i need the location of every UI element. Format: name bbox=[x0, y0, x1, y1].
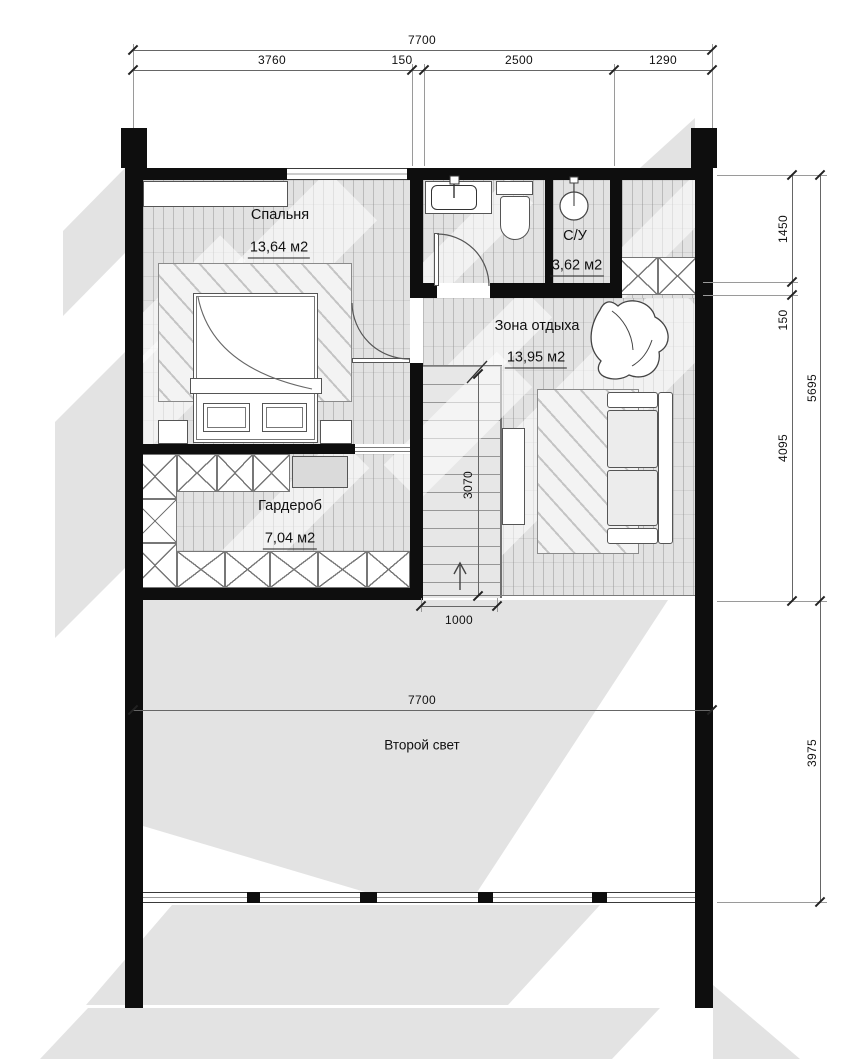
wardrobe-cabinet bbox=[225, 551, 270, 588]
window bbox=[143, 892, 695, 903]
dim-top-total: 7700 bbox=[408, 33, 436, 47]
nightstand bbox=[320, 420, 352, 444]
dim-stairs-depth: 3070 bbox=[461, 471, 475, 499]
interior-wall bbox=[410, 363, 423, 600]
interior-wall bbox=[125, 588, 421, 600]
wardrobe-cabinet bbox=[367, 551, 410, 588]
sofa-armrest bbox=[607, 528, 658, 544]
toilet-tank bbox=[496, 181, 533, 195]
wardrobe-cabinet bbox=[270, 551, 318, 588]
corridor-cabinet bbox=[658, 257, 697, 295]
window-pier bbox=[247, 892, 260, 903]
window bbox=[287, 168, 407, 180]
dim-middle: 7700 bbox=[408, 693, 436, 707]
wardrobe-cabinet bbox=[217, 454, 253, 492]
dim-segment: 1290 bbox=[649, 53, 677, 67]
area-label-bedroom: 13,64 м2 bbox=[248, 240, 310, 259]
area-label-bathroom: 3,62 м2 bbox=[550, 258, 604, 277]
exterior-wall bbox=[143, 168, 287, 180]
bedroom-door-leaf bbox=[352, 358, 410, 363]
exterior-wall bbox=[407, 168, 695, 180]
sofa-cushion bbox=[607, 410, 658, 468]
dim-right: 4095 bbox=[776, 434, 790, 462]
exterior-wall bbox=[695, 168, 713, 1008]
area-label-lounge: 13,95 м2 bbox=[505, 350, 567, 369]
corridor-cabinet bbox=[618, 257, 658, 295]
toilet bbox=[500, 196, 530, 240]
wardrobe-cabinet bbox=[177, 551, 225, 588]
bed-blanket bbox=[190, 378, 322, 394]
dim-segment: 3760 bbox=[258, 53, 286, 67]
column bbox=[121, 128, 147, 168]
window-pier bbox=[478, 892, 493, 903]
dim-stairs-width: 1000 bbox=[445, 613, 473, 627]
dim-right: 3975 bbox=[805, 739, 819, 767]
window-pier bbox=[360, 892, 377, 903]
interior-wall bbox=[125, 444, 355, 454]
wardrobe-cabinet bbox=[318, 551, 367, 588]
sofa-backrest bbox=[658, 392, 673, 544]
dim-segment: 2500 bbox=[505, 53, 533, 67]
bathroom-door-leaf bbox=[434, 233, 439, 286]
wardrobe-cabinet bbox=[253, 454, 290, 492]
dresser bbox=[292, 456, 348, 488]
bedroom-shelf bbox=[143, 181, 288, 207]
room-label-wardrobe: Гардероб bbox=[258, 498, 322, 514]
room-label-bedroom: Спальня bbox=[251, 207, 309, 223]
wardrobe-cabinet bbox=[177, 454, 217, 492]
sink bbox=[431, 185, 477, 210]
room-label-void: Второй свет bbox=[384, 738, 459, 753]
dim-right: 150 bbox=[776, 310, 790, 331]
dim-right: 5695 bbox=[805, 374, 819, 402]
floor-plan: 7700 3760 150 2500 1290 1450 150 4095 56… bbox=[0, 0, 851, 1059]
dim-segment: 150 bbox=[392, 53, 413, 67]
room-label-lounge: Зона отдыха bbox=[495, 318, 580, 334]
sofa-armrest bbox=[607, 392, 658, 408]
pillow bbox=[203, 403, 250, 432]
sofa-cushion bbox=[607, 470, 658, 526]
interior-wall bbox=[490, 283, 622, 298]
dim-right: 1450 bbox=[776, 215, 790, 243]
window-pier bbox=[592, 892, 607, 903]
column bbox=[691, 128, 717, 168]
area-label-wardrobe: 7,04 м2 bbox=[263, 531, 317, 550]
interior-wall bbox=[410, 180, 423, 298]
nightstand bbox=[158, 420, 188, 444]
pillow bbox=[262, 403, 307, 432]
room-label-bathroom: С/У bbox=[563, 228, 587, 244]
tv-console bbox=[502, 428, 525, 525]
interior-wall bbox=[610, 180, 622, 283]
